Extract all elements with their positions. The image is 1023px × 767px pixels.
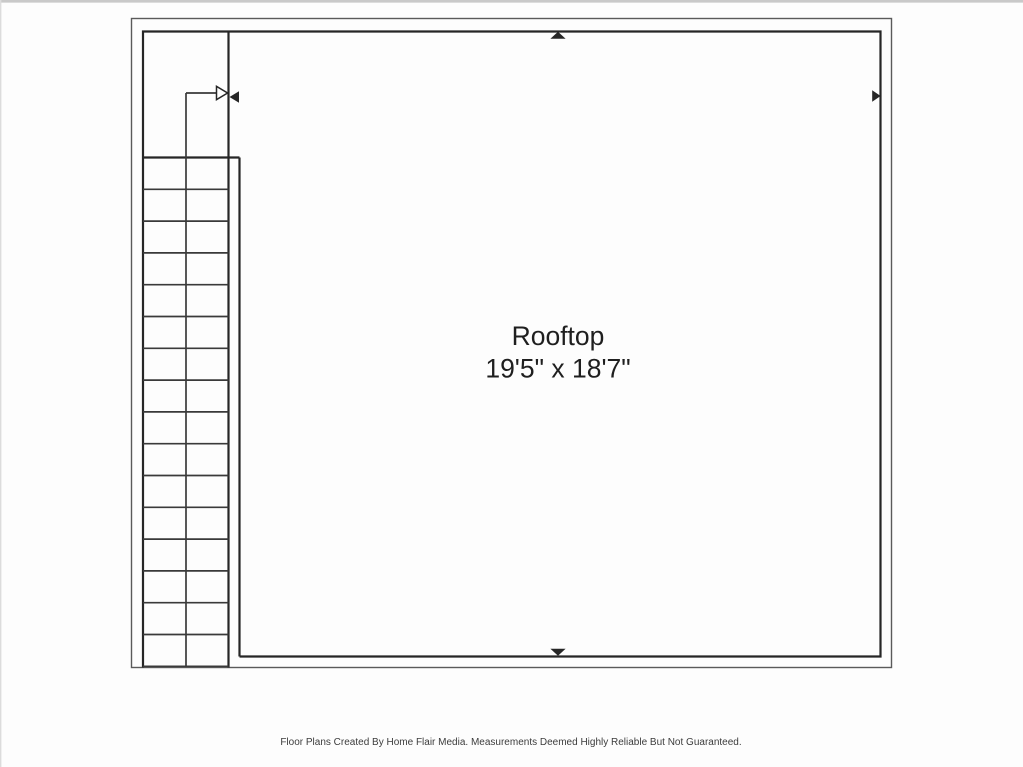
room-dimensions-label: 19'5" x 18'7" [485, 354, 630, 384]
dimension-marker-bottom-icon [550, 649, 565, 656]
floorplan-drawing: Rooftop 19'5" x 18'7" Floor Plans Create… [0, 0, 1023, 767]
dimension-marker-top-icon [550, 32, 565, 39]
floorplan-canvas: Rooftop 19'5" x 18'7" Floor Plans Create… [0, 0, 1023, 767]
room-name-label: Rooftop [512, 321, 605, 351]
dimension-marker-right-icon [872, 90, 880, 102]
dimension-marker-left-icon [230, 91, 240, 103]
footer-disclaimer: Floor Plans Created By Home Flair Media.… [280, 737, 741, 748]
stair-direction-arrowhead-icon [217, 86, 228, 99]
